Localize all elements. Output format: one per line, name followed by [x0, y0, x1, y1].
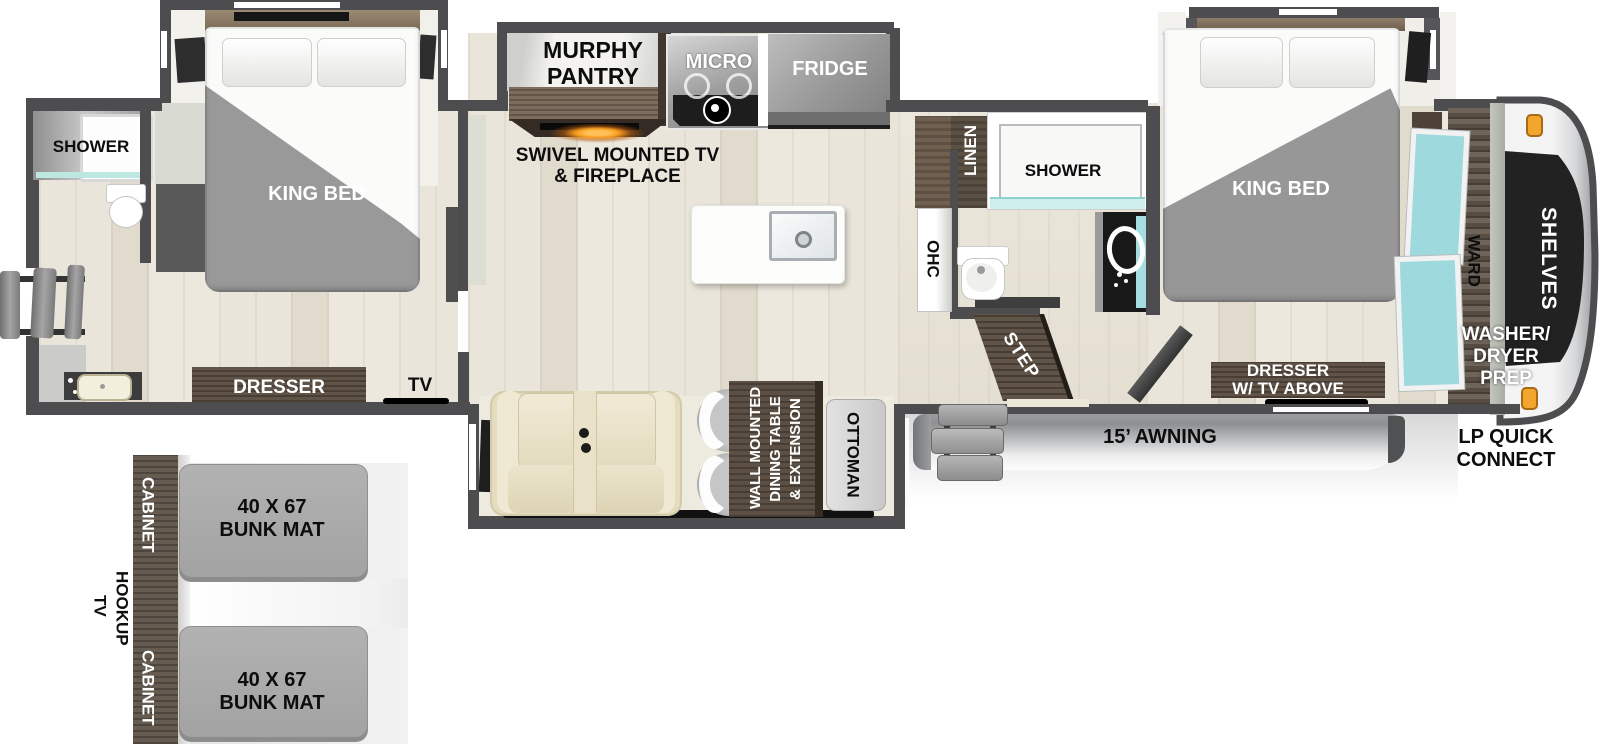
svg-text:SHELVES: SHELVES	[1537, 207, 1560, 310]
